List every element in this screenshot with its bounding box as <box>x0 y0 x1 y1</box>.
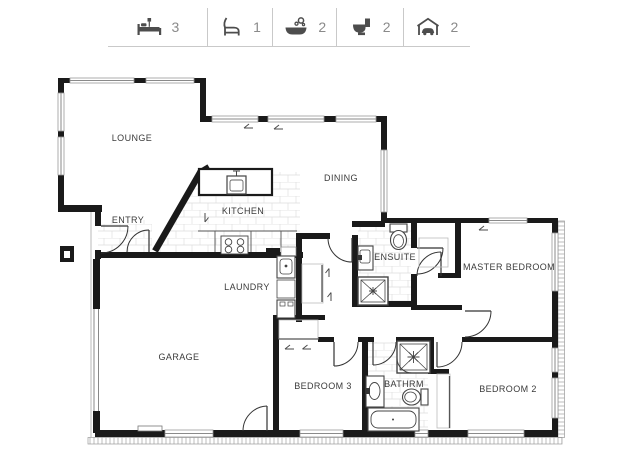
garage-rear-door <box>243 406 267 431</box>
bedroom2-door <box>437 342 462 367</box>
washing-machine <box>277 300 295 318</box>
walk-in-robe-shelf <box>419 238 448 267</box>
room-label-garage: GARAGE <box>159 352 200 362</box>
bedroom2-closet <box>437 374 450 428</box>
room-label-entry: ENTRY <box>112 215 144 225</box>
stove <box>221 236 248 254</box>
laundry-fixtures <box>277 256 295 318</box>
room-label-bedroom-2: BEDROOM 2 <box>479 384 537 394</box>
floor-plan: LOUNGE ENTRY KITCHEN DINING ENSUITE MAST… <box>0 0 639 468</box>
room-label-lounge: LOUNGE <box>112 133 152 143</box>
bathroom-toilet <box>403 389 429 405</box>
room-label-bedroom-3: BEDROOM 3 <box>294 381 352 391</box>
hall-door <box>328 238 352 262</box>
bathroom-vanity <box>366 376 384 407</box>
room-label-master-bedroom: MASTER BEDROOM <box>463 262 555 272</box>
laundry-tub <box>277 256 295 278</box>
floor-plan-page: 3 1 2 <box>0 0 639 468</box>
room-label-ensuite: ENSUITE <box>374 252 416 262</box>
bedroom3-door <box>334 342 358 366</box>
linen-closet <box>302 264 323 303</box>
bathroom-shower <box>397 341 430 373</box>
ensuite-shower <box>358 277 388 305</box>
bedroom3-closet <box>279 320 318 339</box>
room-label-kitchen: KITCHEN <box>222 206 264 216</box>
ensuite-toilet <box>390 224 407 250</box>
garage-door <box>94 309 162 431</box>
room-label-dining: DINING <box>324 173 358 183</box>
porch-post <box>60 246 74 262</box>
laundry-bench <box>277 280 295 298</box>
ensuite-vanity <box>358 246 373 270</box>
bathtub <box>368 408 419 431</box>
master-bedroom-door <box>465 311 491 337</box>
room-label-bathroom: BATHRM <box>384 379 424 389</box>
room-label-laundry: LAUNDRY <box>224 282 270 292</box>
